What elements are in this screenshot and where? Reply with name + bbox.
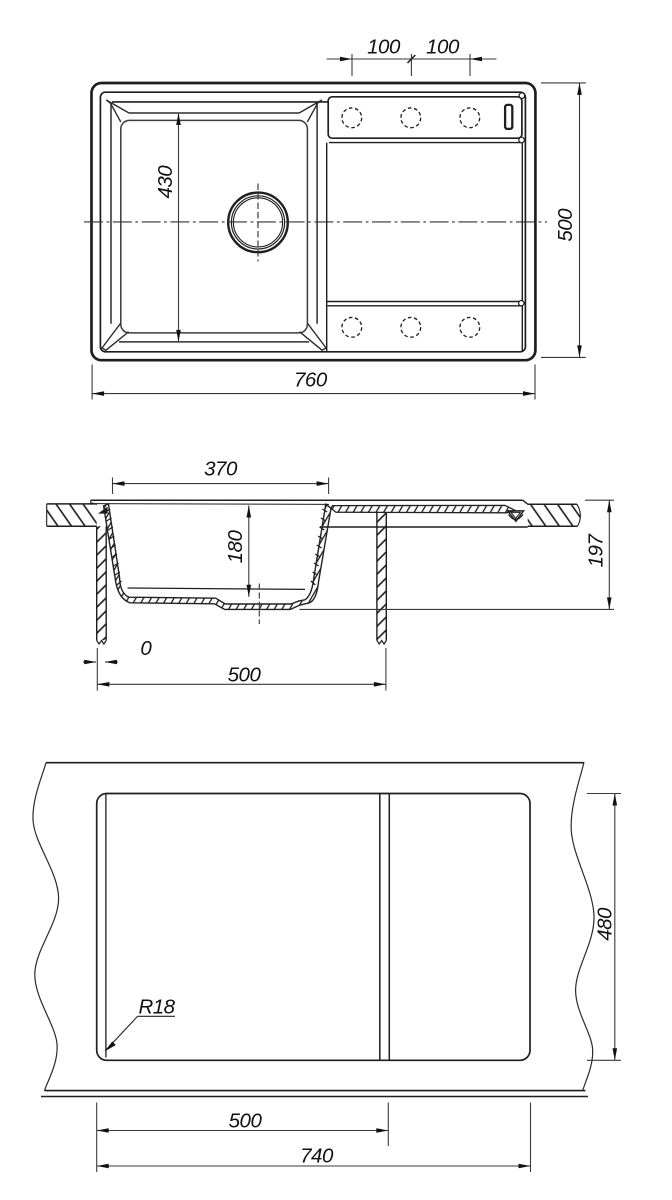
svg-text:100: 100 xyxy=(426,35,460,58)
svg-text:480: 480 xyxy=(594,907,617,941)
svg-text:500: 500 xyxy=(554,208,577,242)
svg-text:0: 0 xyxy=(140,637,152,660)
svg-text:430: 430 xyxy=(154,165,177,199)
svg-text:100: 100 xyxy=(367,35,401,58)
svg-text:500: 500 xyxy=(228,663,262,686)
svg-text:180: 180 xyxy=(224,530,247,564)
svg-text:760: 760 xyxy=(294,369,328,392)
svg-text:500: 500 xyxy=(229,1110,263,1133)
svg-text:370: 370 xyxy=(204,458,238,481)
svg-text:740: 740 xyxy=(300,1144,334,1167)
svg-text:R18: R18 xyxy=(138,996,175,1019)
svg-text:197: 197 xyxy=(585,533,608,568)
